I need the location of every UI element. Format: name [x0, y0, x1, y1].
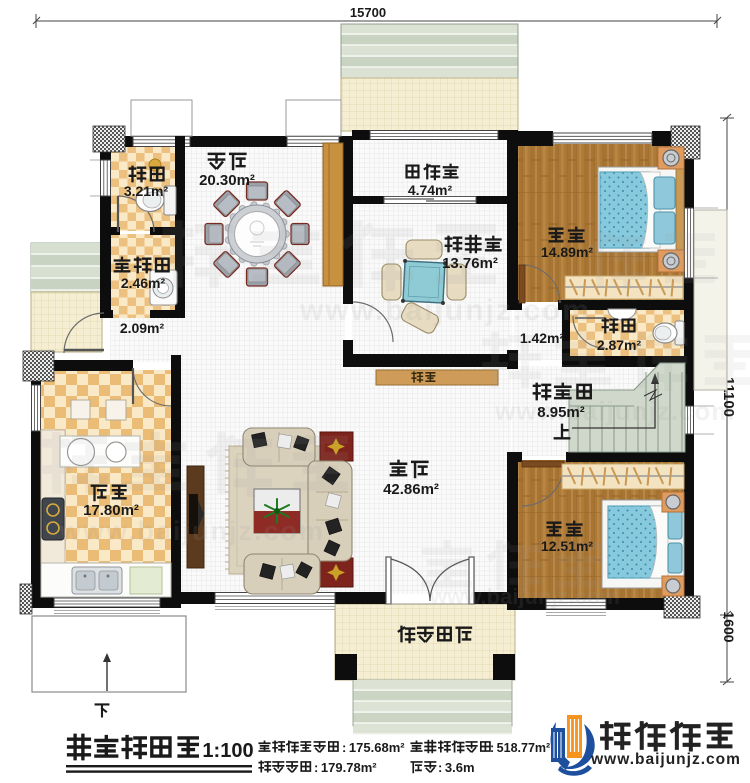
svg-text:www.baijunjz.com: www.baijunjz.com	[590, 751, 741, 768]
svg-text:2.87m²: 2.87m²	[597, 337, 642, 353]
svg-text:3.21m²: 3.21m²	[124, 183, 169, 199]
svg-text:15700: 15700	[350, 5, 386, 20]
svg-text:17.80m²: 17.80m²	[83, 502, 139, 519]
svg-text:www.baijunjz.com: www.baijunjz.com	[299, 294, 591, 327]
svg-text:14.89m²: 14.89m²	[541, 244, 593, 260]
svg-text:: 3.6m: : 3.6m	[438, 760, 475, 775]
svg-text:www.baijunjz.com: www.baijunjz.com	[494, 396, 735, 426]
svg-text:1:100: 1:100	[202, 740, 253, 762]
svg-text:4.74m²: 4.74m²	[408, 182, 453, 198]
svg-text:20.30m²: 20.30m²	[199, 172, 255, 189]
svg-text:: 175.68m²: : 175.68m²	[342, 740, 405, 755]
svg-text:www.baijunjz.com: www.baijunjz.com	[429, 584, 620, 609]
svg-text:2.09m²: 2.09m²	[120, 320, 165, 336]
svg-text:www.baijunjz.com: www.baijunjz.com	[59, 516, 325, 546]
svg-text:13.76m²: 13.76m²	[442, 255, 498, 272]
svg-text:1.42m²: 1.42m²	[520, 330, 565, 346]
svg-text:1600: 1600	[721, 611, 737, 642]
svg-text:: 518.77m²: : 518.77m²	[490, 741, 550, 755]
svg-text:: 179.78m²: : 179.78m²	[314, 760, 377, 775]
svg-text:8.95m²: 8.95m²	[537, 404, 585, 421]
svg-text:42.86m²: 42.86m²	[383, 481, 439, 498]
svg-text:2.46m²: 2.46m²	[121, 275, 166, 291]
svg-text:12.51m²: 12.51m²	[541, 538, 593, 554]
